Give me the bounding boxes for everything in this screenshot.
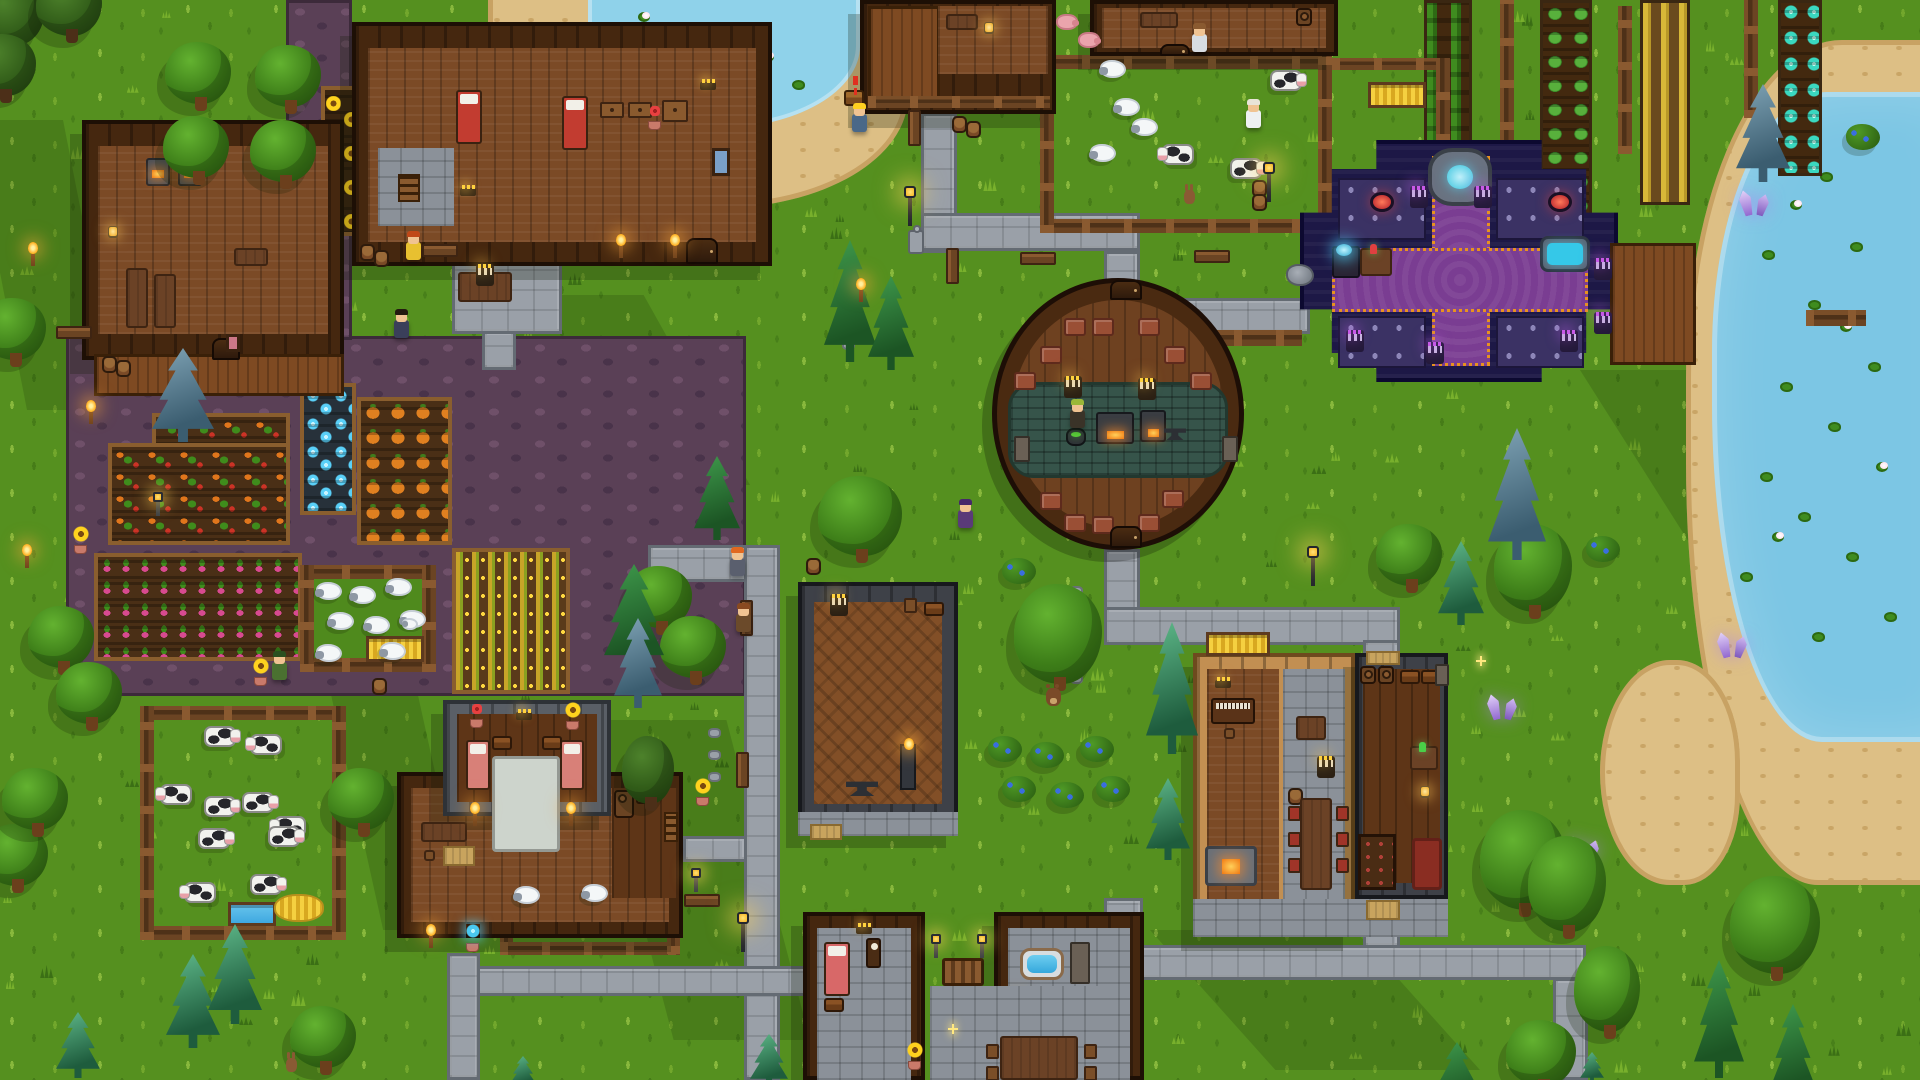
stone-path xyxy=(447,966,810,996)
lily-flower xyxy=(1790,200,1802,210)
purple-candelabra xyxy=(1594,258,1612,280)
lantern xyxy=(152,492,164,518)
grass-tuft xyxy=(6,979,15,989)
candelabra xyxy=(476,264,494,286)
sheep[interactable] xyxy=(364,616,390,634)
lily-pad xyxy=(1846,552,1859,562)
flower-pot xyxy=(468,702,486,728)
crate-seat xyxy=(1092,318,1114,336)
fence xyxy=(1806,310,1866,326)
grass-tuft xyxy=(1266,559,1278,567)
chair xyxy=(1084,1066,1097,1080)
keg xyxy=(1378,666,1394,684)
crystal xyxy=(1662,366,1680,388)
fence xyxy=(140,926,346,940)
grass-tuft xyxy=(1471,724,1481,734)
grass-tuft xyxy=(1730,57,1745,66)
fence xyxy=(1040,55,1332,69)
lily-pad xyxy=(1884,612,1897,622)
barrel xyxy=(102,356,117,373)
fence xyxy=(140,706,154,940)
chair xyxy=(1336,806,1349,821)
stone-path xyxy=(482,330,516,370)
sheep[interactable] xyxy=(328,612,354,630)
fence xyxy=(1318,55,1332,233)
oak-tree xyxy=(56,662,122,724)
grass-tuft xyxy=(964,739,977,750)
berry-bush xyxy=(1586,536,1620,562)
pine-tree xyxy=(510,1056,536,1080)
floor xyxy=(1193,899,1448,937)
stepping-stone xyxy=(708,772,721,782)
hanging-lantern xyxy=(1420,786,1430,798)
bench xyxy=(1194,250,1230,263)
rug xyxy=(1412,838,1442,890)
barrel xyxy=(116,360,131,377)
crate-seat xyxy=(1162,490,1184,508)
sheep[interactable] xyxy=(350,586,376,604)
npc-miner[interactable] xyxy=(852,114,867,132)
grass-tuft xyxy=(983,177,996,190)
stepping-stone xyxy=(708,728,721,738)
cow[interactable] xyxy=(242,792,274,813)
sheep[interactable] xyxy=(514,886,540,904)
grass-tuft xyxy=(952,929,967,941)
fence xyxy=(868,96,1050,108)
oak-tree xyxy=(328,768,394,830)
wall-candles xyxy=(460,188,476,196)
bed xyxy=(456,90,482,144)
torch xyxy=(670,236,680,258)
berry-bush xyxy=(988,736,1022,762)
oak-tree xyxy=(165,42,231,104)
candelabra xyxy=(1317,756,1335,778)
sunflower-pot xyxy=(72,526,90,554)
sand xyxy=(1600,660,1740,885)
table xyxy=(946,14,978,30)
oak-tree xyxy=(255,45,321,107)
pine-tree xyxy=(56,1012,100,1078)
lily-pad xyxy=(1808,300,1821,310)
purple-candelabra xyxy=(1474,186,1492,208)
npc-milkmaid[interactable] xyxy=(1246,110,1261,128)
oak-tree xyxy=(0,34,36,96)
cow[interactable] xyxy=(1270,70,1302,91)
crystal xyxy=(1896,406,1914,428)
oak-tree xyxy=(290,1006,356,1068)
grass-tuft xyxy=(1446,389,1458,400)
purple-candelabra xyxy=(1560,330,1578,352)
oak-tree xyxy=(163,116,229,178)
oak-tree xyxy=(1376,524,1442,586)
chair xyxy=(904,598,917,613)
npc-hooded-figure[interactable] xyxy=(958,510,973,528)
table xyxy=(1300,798,1332,890)
piano xyxy=(1211,698,1255,724)
sheep[interactable] xyxy=(1114,98,1140,116)
grass-tuft xyxy=(909,403,918,410)
grass-tuft xyxy=(1331,451,1340,460)
lily-pad xyxy=(1868,362,1881,372)
lily-flower xyxy=(638,12,650,22)
pine-tree xyxy=(1438,541,1484,625)
hay-trough xyxy=(1206,632,1270,656)
dresser xyxy=(600,102,624,118)
grass-tuft xyxy=(963,583,974,594)
grass-tuft xyxy=(306,953,319,965)
stone-path xyxy=(1104,945,1586,980)
pine-tree xyxy=(824,240,876,362)
oak-tree xyxy=(1528,836,1606,932)
wall-candles xyxy=(700,82,716,90)
grass-tuft xyxy=(1091,667,1105,681)
door[interactable] xyxy=(1160,44,1190,56)
lamp-post xyxy=(1262,162,1276,204)
oak-tree xyxy=(1506,1020,1576,1080)
sunflower xyxy=(326,96,341,111)
offering-bowl xyxy=(1370,192,1394,212)
door-mat[interactable] xyxy=(810,824,842,840)
npc-alchemist[interactable] xyxy=(1070,410,1085,428)
grass-tuft xyxy=(1178,248,1187,255)
sheep[interactable] xyxy=(1100,60,1126,78)
crop-plot-teal xyxy=(1778,0,1822,176)
crate-seat xyxy=(1040,492,1062,510)
crystal-cluster xyxy=(1738,186,1768,220)
fence xyxy=(300,565,436,579)
floor xyxy=(1102,8,1326,48)
chair xyxy=(986,1066,999,1080)
crate-seat xyxy=(1138,514,1160,532)
torch xyxy=(616,236,626,258)
sheep[interactable] xyxy=(380,642,406,660)
npc-villager-dark-hat[interactable] xyxy=(394,320,409,338)
oak-tree xyxy=(1574,946,1640,1032)
lily-pad xyxy=(1828,422,1841,432)
oak-tree xyxy=(250,120,316,182)
cow[interactable] xyxy=(204,726,236,747)
cow[interactable] xyxy=(250,874,282,895)
cow[interactable] xyxy=(268,826,300,847)
purple-candelabra xyxy=(1410,186,1428,208)
grass-tuft xyxy=(1828,1045,1840,1055)
wooden-deck xyxy=(868,6,940,106)
crate-seat xyxy=(1040,346,1062,364)
barrel xyxy=(806,558,821,575)
pig[interactable] xyxy=(1056,14,1078,30)
oak-tree xyxy=(36,0,102,36)
grass-tuft xyxy=(1472,802,1484,812)
grass-tuft xyxy=(835,214,844,222)
bed xyxy=(466,740,490,790)
dresser xyxy=(662,100,688,122)
candelabra xyxy=(1064,376,1082,398)
grass-tuft xyxy=(127,85,139,93)
candelabra xyxy=(830,594,848,616)
door[interactable] xyxy=(1110,280,1142,300)
chest xyxy=(492,736,512,750)
crystal xyxy=(1852,46,1870,68)
grass-tuft xyxy=(1123,833,1139,844)
crate-seat xyxy=(1064,514,1086,532)
lantern xyxy=(976,934,988,960)
fence xyxy=(1040,219,1332,233)
bench xyxy=(736,752,749,788)
table xyxy=(1296,716,1326,740)
lily-pad xyxy=(1850,242,1863,252)
grandfather-clock xyxy=(866,938,881,968)
lamp-post xyxy=(1306,546,1320,588)
ritual-pool xyxy=(1540,236,1590,272)
table xyxy=(234,248,268,266)
grass-tuft xyxy=(1614,1059,1628,1072)
candelabra xyxy=(1138,378,1156,400)
table xyxy=(126,268,148,328)
grass-tuft xyxy=(291,992,305,1006)
pine-tree xyxy=(166,954,220,1048)
sheep[interactable] xyxy=(386,578,412,596)
grass-tuft xyxy=(3,896,12,903)
crate-seat xyxy=(1014,372,1036,390)
berry-bush xyxy=(1050,782,1084,808)
fence xyxy=(1618,6,1632,154)
bear-cub[interactable] xyxy=(1046,688,1061,706)
torch xyxy=(426,926,436,948)
door-mat[interactable] xyxy=(1366,900,1400,920)
grass-tuft xyxy=(1525,112,1535,121)
forge xyxy=(900,744,916,790)
keg xyxy=(1296,8,1312,26)
grass-tuft xyxy=(1666,604,1678,614)
berry-bush xyxy=(1080,736,1114,762)
cabinet xyxy=(1435,664,1449,686)
grass-tuft xyxy=(1748,983,1760,996)
grass-tuft xyxy=(1491,901,1499,912)
grass-tuft xyxy=(484,945,496,954)
npc-child[interactable] xyxy=(406,242,421,260)
sheep[interactable] xyxy=(1090,144,1116,162)
game-world[interactable] xyxy=(0,0,1920,1080)
lily-pad xyxy=(1798,512,1811,522)
lily-pad xyxy=(1762,250,1775,260)
bed xyxy=(562,96,588,150)
crop-plot-pumpkin xyxy=(357,397,452,545)
table xyxy=(421,822,467,842)
door-mat[interactable] xyxy=(1366,651,1400,665)
chair xyxy=(1288,832,1301,847)
wooden-deck xyxy=(94,354,344,396)
pig[interactable] xyxy=(1078,32,1100,48)
bench xyxy=(422,244,458,257)
crystal xyxy=(1890,158,1908,180)
cow[interactable] xyxy=(1230,158,1262,179)
lantern xyxy=(930,934,942,960)
grass-tuft xyxy=(949,530,960,540)
lamp-post xyxy=(736,912,750,954)
oak-tree xyxy=(1730,876,1820,974)
table xyxy=(154,274,176,328)
crop-plot-corn xyxy=(452,548,570,694)
oak-tree xyxy=(818,476,902,556)
fence xyxy=(140,706,346,720)
crate-seat xyxy=(1064,318,1086,336)
door[interactable] xyxy=(686,238,718,264)
lily-pad xyxy=(1812,632,1825,642)
lily-flower xyxy=(1876,462,1888,472)
crystal xyxy=(1698,218,1716,240)
pine-tree xyxy=(1770,1004,1816,1080)
grass-tuft xyxy=(1896,1023,1911,1036)
grass-tuft xyxy=(1455,644,1471,651)
grass-tuft xyxy=(162,10,171,18)
grass-tuft xyxy=(1028,805,1040,815)
grass-tuft xyxy=(853,464,863,473)
berry-bush xyxy=(1846,124,1880,150)
npc-farmhand[interactable] xyxy=(1192,34,1207,52)
painting xyxy=(226,334,240,352)
grass-tuft xyxy=(1551,732,1565,740)
pine-tree xyxy=(1694,960,1744,1078)
crystal-flower-pot xyxy=(464,924,482,952)
sheep[interactable] xyxy=(316,644,342,662)
grass-tuft xyxy=(1385,453,1399,462)
rabbit[interactable] xyxy=(286,1058,297,1072)
hanging-lantern xyxy=(984,22,994,34)
crop-plot-wheat xyxy=(1640,0,1690,205)
ladder[interactable] xyxy=(398,174,420,202)
stone-path xyxy=(447,953,480,1080)
crop-plot-beet xyxy=(94,553,302,661)
oak-tree xyxy=(622,736,674,804)
crystal xyxy=(1524,744,1542,766)
fence xyxy=(500,942,680,955)
chair xyxy=(1084,1044,1097,1059)
crop-plot-bluestar xyxy=(300,383,356,515)
fence xyxy=(1332,58,1448,70)
oak-tree xyxy=(660,616,726,678)
grass-tuft xyxy=(805,207,817,218)
keg xyxy=(1360,666,1376,684)
lily-flower xyxy=(1772,532,1784,542)
pine-tree xyxy=(868,276,914,370)
barrel xyxy=(952,116,967,133)
grass-tuft xyxy=(239,1017,253,1025)
cow[interactable] xyxy=(160,784,192,805)
rug xyxy=(492,756,560,852)
berry-bush xyxy=(1002,776,1036,802)
sparkle xyxy=(948,1024,958,1034)
cabinet xyxy=(1014,436,1030,462)
sheep[interactable] xyxy=(1132,118,1158,136)
barrel xyxy=(372,678,387,695)
torch xyxy=(856,280,866,302)
pine-tree xyxy=(1146,778,1190,860)
sunflower-pot xyxy=(252,658,270,686)
ladder[interactable] xyxy=(664,812,678,842)
torch xyxy=(22,546,32,568)
wall-candles xyxy=(1215,680,1231,688)
lily-pad xyxy=(792,80,805,90)
blue-pine-tree xyxy=(1488,428,1546,560)
grass-tuft xyxy=(1208,155,1224,164)
lily-pad xyxy=(1780,382,1793,392)
npc-farmer[interactable] xyxy=(272,662,287,680)
grass-tuft xyxy=(1311,465,1326,474)
sheep[interactable] xyxy=(582,884,608,902)
potion-table xyxy=(1410,746,1438,770)
sunflower-pot xyxy=(906,1042,924,1070)
hay-trough xyxy=(1368,82,1426,108)
oak-tree xyxy=(1014,584,1102,684)
stool xyxy=(424,850,435,861)
offering-bowl xyxy=(1548,192,1572,212)
torch xyxy=(86,402,96,424)
grass-tuft xyxy=(568,273,582,285)
fence xyxy=(300,565,314,672)
bench xyxy=(946,248,959,284)
door-mat[interactable] xyxy=(443,846,475,866)
lamb[interactable] xyxy=(402,618,418,630)
crop-plot-roots xyxy=(108,443,290,545)
npc-red-haired-villager[interactable] xyxy=(730,558,745,576)
stool xyxy=(1224,728,1235,739)
npc-ranger[interactable] xyxy=(736,614,751,632)
wall-candles xyxy=(856,926,872,934)
grass-tuft xyxy=(1706,40,1715,52)
floor xyxy=(814,602,942,804)
cow[interactable] xyxy=(198,828,230,849)
torch xyxy=(470,804,480,826)
grass-tuft xyxy=(125,779,139,787)
gate[interactable] xyxy=(942,958,984,986)
lily-pad xyxy=(1760,472,1773,482)
cow[interactable] xyxy=(1162,144,1194,165)
skull-rug xyxy=(1496,178,1584,240)
grass-tuft xyxy=(830,227,842,240)
barrel xyxy=(360,244,375,261)
grass-tuft xyxy=(40,965,53,978)
sunflower-pot xyxy=(694,778,712,806)
grass-tuft xyxy=(1306,502,1320,509)
crystal xyxy=(1644,460,1662,482)
cabinet xyxy=(1070,942,1090,984)
grass-tuft xyxy=(1551,634,1564,641)
potion-table xyxy=(1360,248,1392,276)
crate-seat xyxy=(1164,346,1186,364)
barrel xyxy=(966,121,981,138)
cow[interactable] xyxy=(184,882,216,903)
hearth xyxy=(1205,846,1257,886)
grass-tuft xyxy=(263,988,275,999)
sheep[interactable] xyxy=(316,582,342,600)
purple-candelabra xyxy=(1594,312,1612,334)
stepping-stone xyxy=(708,750,721,760)
grass-tuft xyxy=(1172,1035,1186,1045)
torch xyxy=(28,244,38,266)
chest xyxy=(824,998,844,1012)
cow[interactable] xyxy=(250,734,282,755)
chair xyxy=(1336,858,1349,873)
cabinet xyxy=(1222,436,1238,462)
bench xyxy=(1020,252,1056,265)
painting xyxy=(712,148,730,176)
door[interactable] xyxy=(1110,526,1142,548)
bed xyxy=(560,740,584,790)
rabbit[interactable] xyxy=(1184,190,1195,204)
cow[interactable] xyxy=(204,796,236,817)
temple-dock xyxy=(1610,243,1696,365)
chair xyxy=(1336,832,1349,847)
